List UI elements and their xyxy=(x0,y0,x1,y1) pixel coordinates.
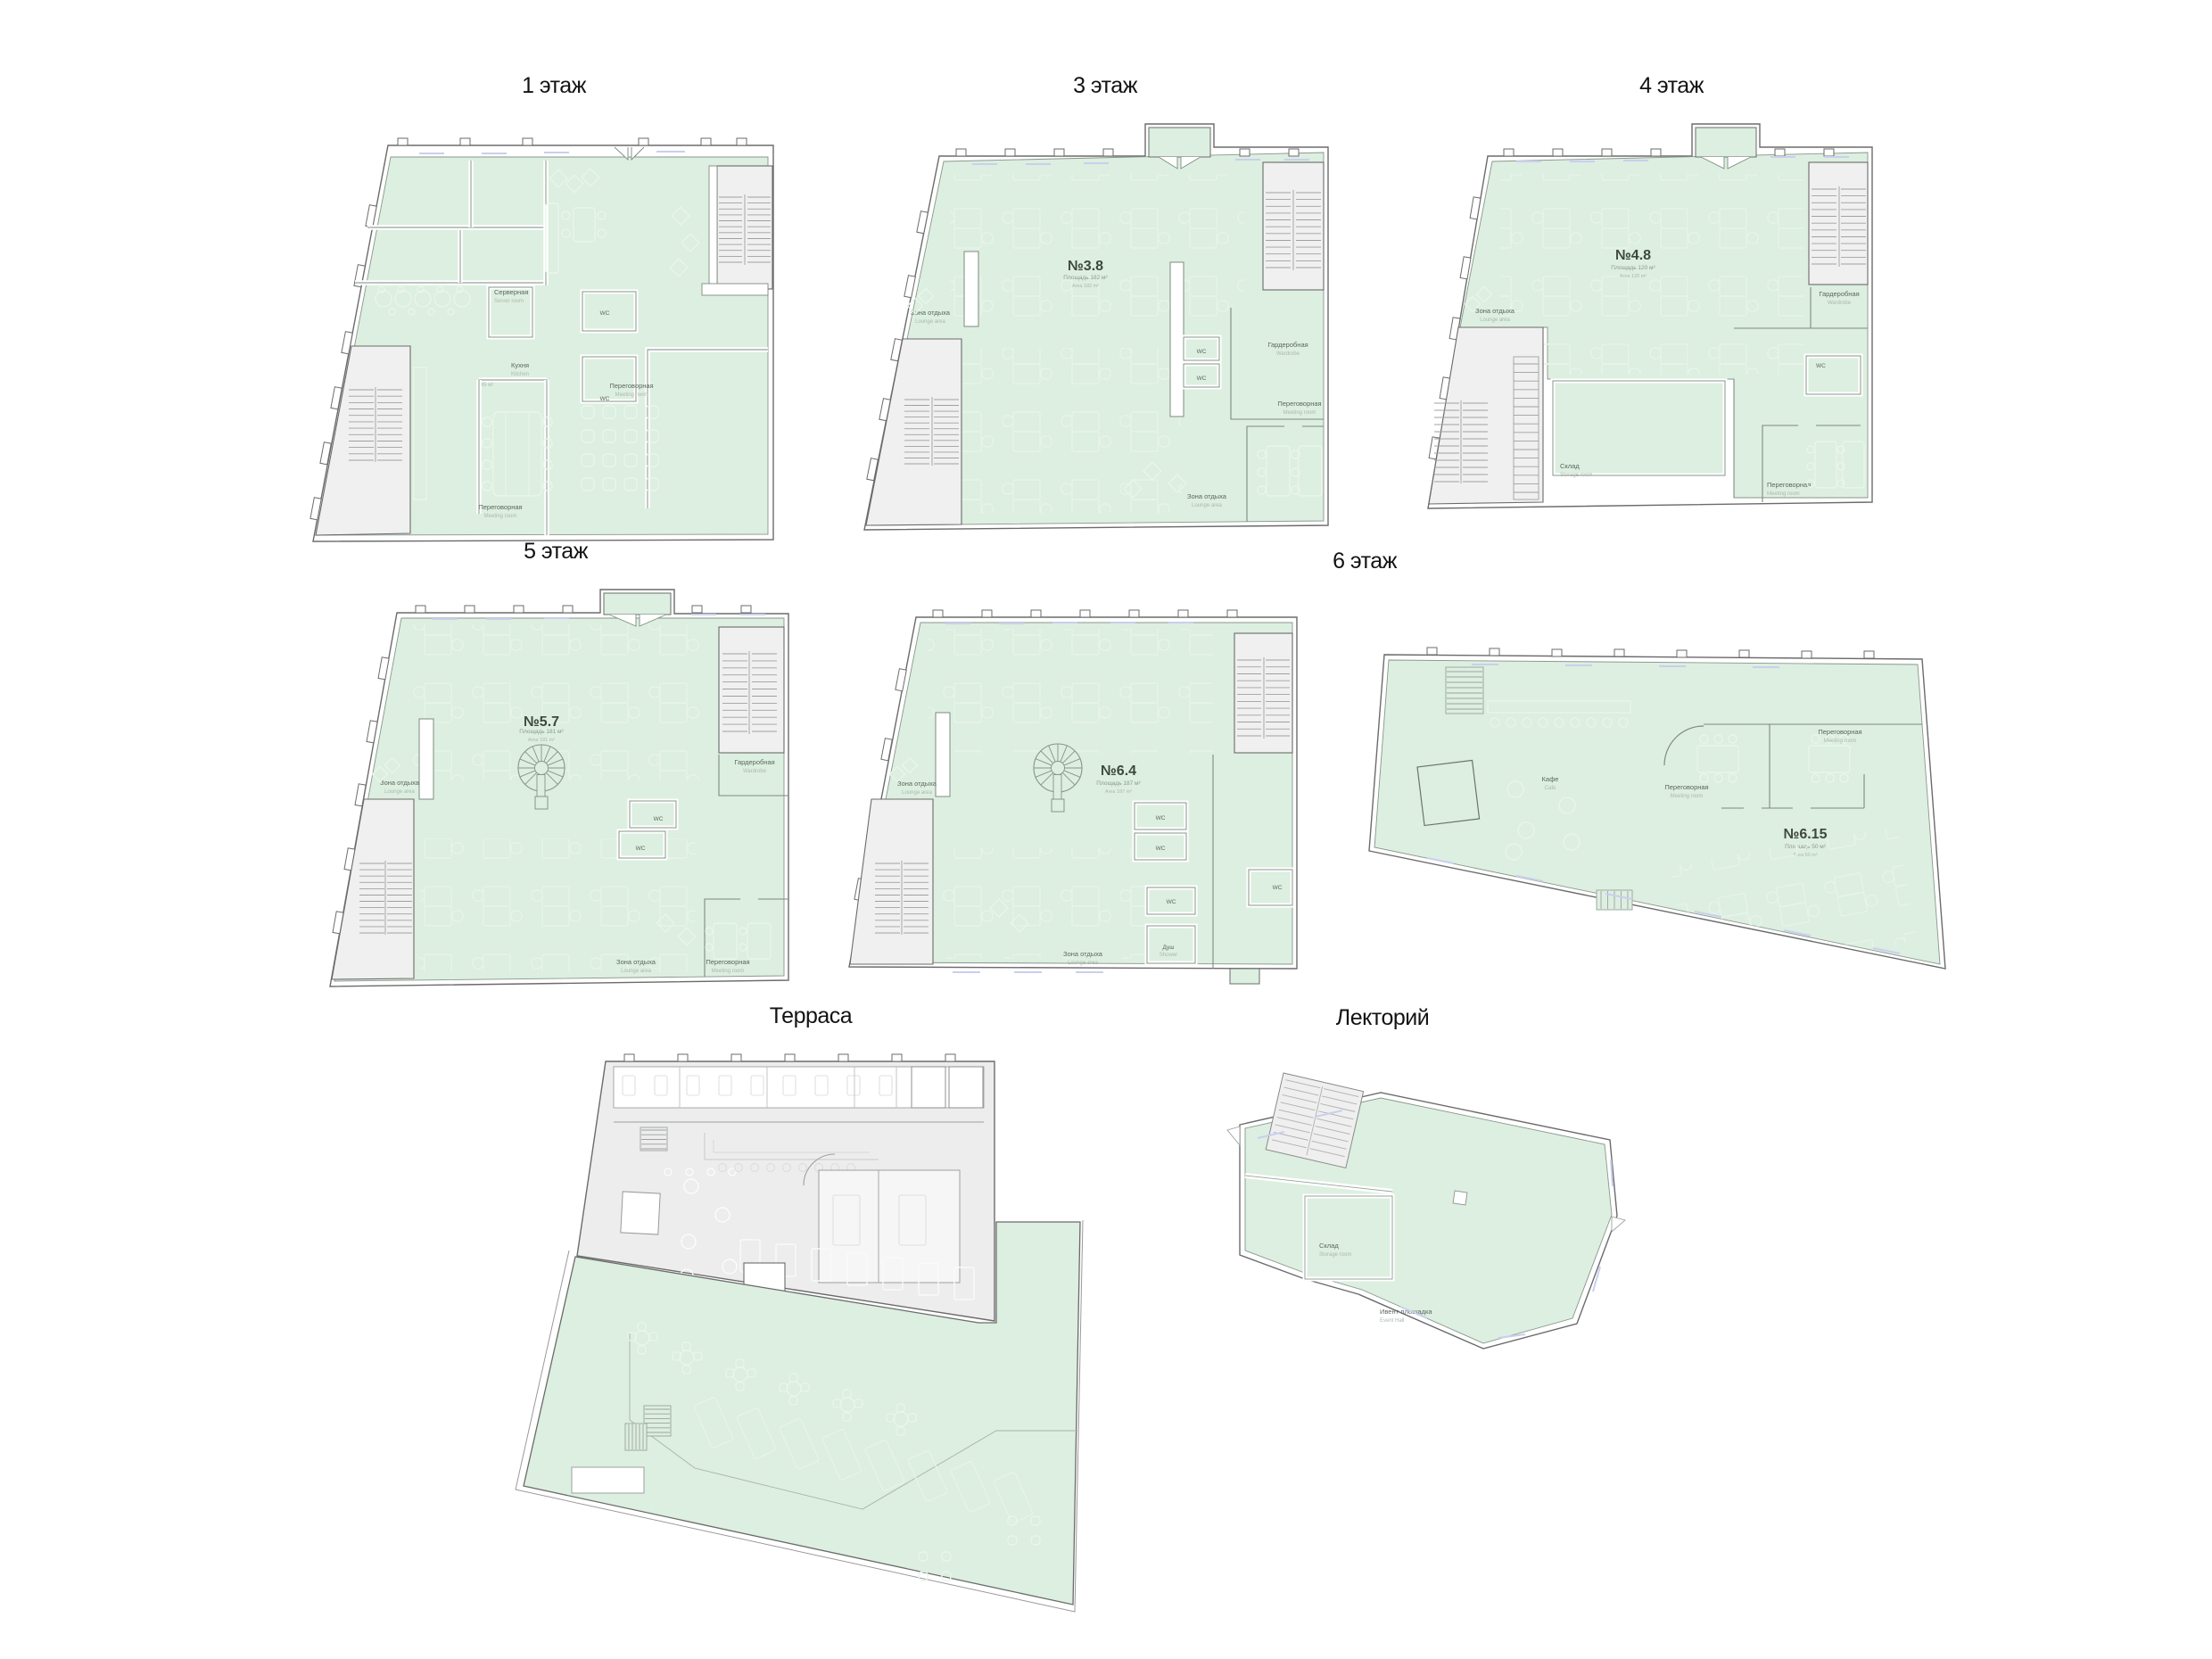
svg-text:Площадь 120 м²: Площадь 120 м² xyxy=(1611,265,1655,271)
svg-text:№3.8: №3.8 xyxy=(1068,259,1103,274)
svg-text:WC: WC xyxy=(1197,376,1207,382)
svg-text:Серверная: Серверная xyxy=(494,288,528,296)
svg-text:Lounge area: Lounge area xyxy=(1192,503,1222,508)
svg-text:Meeting room: Meeting room xyxy=(1283,410,1316,416)
svg-text:5 этаж: 5 этаж xyxy=(524,539,589,564)
svg-text:45 м²: 45 м² xyxy=(481,383,493,388)
svg-text:Душ: Душ xyxy=(1162,945,1174,951)
svg-text:WC: WC xyxy=(600,396,610,402)
svg-text:Площадь 187 м²: Площадь 187 м² xyxy=(1096,780,1141,787)
svg-text:Кафе: Кафе xyxy=(1542,775,1559,783)
svg-text:Wardrobe: Wardrobe xyxy=(743,769,767,774)
svg-text:Гардеробная: Гардеробная xyxy=(734,758,774,766)
svg-text:Зона отдыха: Зона отдыха xyxy=(616,958,656,966)
svg-text:Склад: Склад xyxy=(1319,1242,1339,1250)
svg-text:№5.7: №5.7 xyxy=(524,714,559,730)
svg-text:Lounge area: Lounge area xyxy=(915,319,945,325)
svg-text:Lounge area: Lounge area xyxy=(1068,961,1098,966)
svg-text:Кухня: Кухня xyxy=(511,361,529,369)
svg-text:Lounge area: Lounge area xyxy=(621,969,651,974)
svg-text:Терраса: Терраса xyxy=(770,1003,853,1028)
svg-text:3 этаж: 3 этаж xyxy=(1073,73,1138,98)
svg-text:WC: WC xyxy=(1197,349,1207,355)
svg-text:Area 182 m²: Area 182 m² xyxy=(1072,284,1099,289)
svg-text:6 этаж: 6 этаж xyxy=(1333,549,1398,574)
svg-text:Переговорная: Переговорная xyxy=(1277,400,1321,408)
svg-text:Переговорная: Переговорная xyxy=(478,503,522,511)
svg-text:Wardrobe: Wardrobe xyxy=(1276,351,1300,357)
svg-text:WC: WC xyxy=(1156,815,1166,821)
svg-text:Площадь 182 м²: Площадь 182 м² xyxy=(1063,275,1108,281)
svg-text:Meeting room: Meeting room xyxy=(1824,739,1857,744)
svg-text:Meeting room: Meeting room xyxy=(615,392,648,398)
svg-text:Площадь 181 м²: Площадь 181 м² xyxy=(519,729,564,735)
svg-text:Lounge area: Lounge area xyxy=(384,789,415,795)
svg-text:Wardrobe: Wardrobe xyxy=(1828,301,1852,306)
svg-text:Переговорная: Переговорная xyxy=(1818,728,1861,736)
svg-text:WC: WC xyxy=(654,816,664,822)
svg-text:Зона отдыха: Зона отдыха xyxy=(1063,950,1103,958)
svg-text:WC: WC xyxy=(1156,846,1166,852)
svg-text:Storage room: Storage room xyxy=(1560,473,1592,478)
svg-text:Shower: Shower xyxy=(1160,953,1177,958)
svg-text:Lounge area: Lounge area xyxy=(1480,318,1510,323)
svg-text:№6.4: №6.4 xyxy=(1101,763,1136,779)
svg-text:Kitchen: Kitchen xyxy=(511,372,529,377)
svg-text:WC: WC xyxy=(636,846,646,852)
svg-text:Cafe: Cafe xyxy=(1545,786,1556,791)
svg-text:Event Hall: Event Hall xyxy=(1380,1318,1404,1324)
svg-text:4 этаж: 4 этаж xyxy=(1639,73,1704,98)
svg-text:WC: WC xyxy=(1273,885,1283,891)
svg-text:Переговорная: Переговорная xyxy=(609,382,653,390)
svg-text:WC: WC xyxy=(1167,899,1176,905)
svg-text:Зона отдыха: Зона отдыха xyxy=(1187,492,1227,500)
svg-text:Гардеробная: Гардеробная xyxy=(1267,341,1308,349)
svg-text:Зона отдыха: Зона отдыха xyxy=(1475,307,1515,315)
svg-text:WC: WC xyxy=(600,310,610,317)
svg-text:Склад: Склад xyxy=(1560,462,1580,470)
svg-text:№4.8: №4.8 xyxy=(1615,248,1651,263)
svg-text:WC: WC xyxy=(1816,363,1826,369)
svg-text:Гардеробная: Гардеробная xyxy=(1819,290,1859,298)
svg-text:Storage room: Storage room xyxy=(1319,1252,1351,1258)
svg-text:Area 187 m²: Area 187 m² xyxy=(1105,789,1132,795)
svg-text:Area 120 m²: Area 120 m² xyxy=(1620,274,1647,279)
svg-text:Лекторий: Лекторий xyxy=(1336,1005,1429,1030)
svg-text:Переговорная: Переговорная xyxy=(1664,783,1708,791)
svg-text:Meeting room: Meeting room xyxy=(1671,794,1704,799)
svg-text:Meeting room: Meeting room xyxy=(712,969,745,974)
svg-text:Meeting room: Meeting room xyxy=(484,514,517,519)
svg-text:Зона отдыха: Зона отдыха xyxy=(380,779,420,787)
svg-text:1 этаж: 1 этаж xyxy=(522,73,587,98)
svg-text:Переговорная: Переговорная xyxy=(1767,481,1811,489)
svg-text:Meeting room: Meeting room xyxy=(1767,491,1800,497)
svg-text:Area 181 m²: Area 181 m² xyxy=(528,738,555,743)
svg-text:Server room: Server room xyxy=(494,299,524,304)
svg-text:Lounge area: Lounge area xyxy=(902,790,932,796)
svg-text:№6.15: №6.15 xyxy=(1784,827,1828,842)
svg-text:Зона отдыха: Зона отдыха xyxy=(897,780,937,788)
